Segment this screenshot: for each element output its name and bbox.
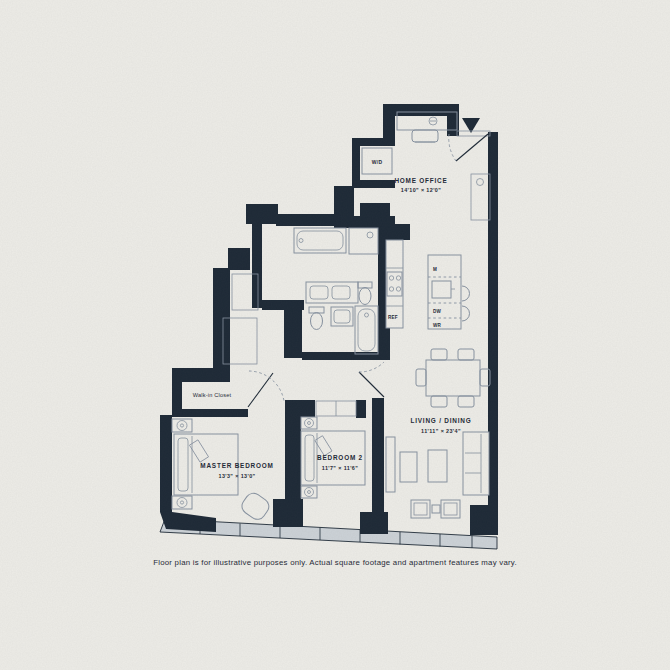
entry-door-swing bbox=[449, 134, 456, 161]
toilet-bowl bbox=[311, 313, 323, 330]
wall-segment bbox=[160, 500, 216, 532]
entry-threshold bbox=[457, 131, 490, 136]
lamp-icon bbox=[305, 488, 314, 497]
door-swing bbox=[249, 371, 284, 401]
second-bath bbox=[309, 306, 378, 354]
armchair-seat bbox=[414, 503, 427, 515]
door-leaf bbox=[359, 372, 384, 397]
lamp-icon bbox=[177, 421, 187, 431]
master-bedroom-furniture bbox=[172, 419, 272, 522]
nightstand bbox=[172, 496, 192, 509]
wall-segment bbox=[302, 352, 390, 360]
bar-stool bbox=[462, 286, 470, 301]
armchair-seat bbox=[444, 503, 457, 515]
master-bath bbox=[294, 228, 378, 305]
wall-segment bbox=[356, 400, 366, 418]
home-office-label: HOME OFFICE bbox=[394, 177, 447, 184]
dining-chair bbox=[458, 396, 474, 407]
walk-in-closet-label: Walk-in Closet bbox=[193, 392, 232, 398]
floor-plan: W/D REF M DW WR bbox=[0, 0, 670, 670]
film-grain-overlay bbox=[0, 0, 670, 670]
desk-chair bbox=[412, 130, 438, 142]
wall-segment bbox=[284, 300, 302, 358]
wall-segment bbox=[340, 216, 362, 228]
lamp-icon bbox=[305, 419, 314, 428]
microwave-label: M bbox=[433, 267, 437, 272]
wall-segment bbox=[273, 499, 303, 527]
lamp-icon bbox=[308, 422, 311, 425]
wall-segment bbox=[160, 415, 172, 510]
entry-closet bbox=[471, 174, 490, 220]
wall-segment bbox=[252, 216, 262, 308]
shower-drain bbox=[367, 232, 373, 238]
kitchen: REF M DW WR bbox=[386, 240, 470, 329]
bar-stool bbox=[462, 306, 470, 321]
dining-chair bbox=[416, 369, 426, 386]
bedroom-2-dims: 11'7" × 11'6" bbox=[322, 465, 358, 471]
media-console bbox=[386, 437, 395, 492]
side-table bbox=[432, 505, 440, 513]
wall-segment bbox=[172, 409, 248, 417]
wall-segment bbox=[213, 268, 230, 382]
wall-segment bbox=[228, 248, 250, 270]
lamp-icon bbox=[177, 498, 187, 508]
master-bedroom-label: MASTER BEDROOM bbox=[200, 462, 273, 469]
dining-chair bbox=[458, 349, 474, 360]
lamp-icon bbox=[180, 501, 183, 504]
dining-table bbox=[426, 360, 480, 396]
bath-sink-basin bbox=[334, 310, 350, 323]
toilet-bowl bbox=[359, 288, 371, 305]
sofa bbox=[463, 432, 489, 495]
coffee-table bbox=[428, 450, 447, 482]
tub-faucet bbox=[299, 239, 303, 243]
lounge-chair bbox=[400, 452, 417, 482]
dining-chair bbox=[431, 349, 447, 360]
shower bbox=[349, 228, 378, 254]
home-office-dims: 14'10" × 12'0" bbox=[401, 187, 441, 193]
wall-segment bbox=[276, 214, 342, 226]
disclaimer-caption: Floor plan is for illustrative purposes … bbox=[153, 558, 517, 567]
entry-door-leaf bbox=[456, 134, 488, 161]
nightstand bbox=[172, 419, 192, 432]
refrigerator-label: REF bbox=[388, 315, 398, 320]
dishwasher-label: DW bbox=[433, 309, 442, 314]
lamp-icon bbox=[180, 424, 183, 427]
wall-segment bbox=[360, 512, 388, 534]
wall-segment bbox=[285, 403, 301, 505]
hall bbox=[223, 274, 384, 407]
sprinkler-icon bbox=[477, 179, 484, 186]
vanity-sink bbox=[332, 286, 350, 299]
bathtub-2-inner bbox=[358, 309, 375, 351]
bathtub-inner bbox=[297, 231, 343, 250]
living-dining-label: LIVING / DINING bbox=[411, 417, 472, 424]
floor-plan-page: W/D REF M DW WR bbox=[0, 0, 670, 670]
wall-segment bbox=[372, 398, 384, 520]
tub-drain bbox=[365, 313, 369, 317]
living-dining-dims: 11'11" × 23'4" bbox=[421, 428, 461, 434]
wine-ref-label: WR bbox=[433, 323, 442, 328]
wall-segment bbox=[352, 180, 395, 188]
lamp-icon bbox=[308, 491, 311, 494]
washer-dryer-label: W/D bbox=[372, 159, 383, 165]
door-swing bbox=[359, 362, 384, 372]
wall-segment bbox=[285, 400, 315, 417]
vanity-sink bbox=[310, 286, 328, 299]
bathtub bbox=[294, 228, 346, 253]
dining-chair bbox=[431, 396, 447, 407]
wall-segment bbox=[470, 505, 498, 535]
master-bedroom-dims: 13'3" × 13'0" bbox=[218, 473, 255, 479]
accent-chair bbox=[239, 490, 272, 522]
bedroom-2-label: BEDROOM 2 bbox=[317, 454, 363, 461]
